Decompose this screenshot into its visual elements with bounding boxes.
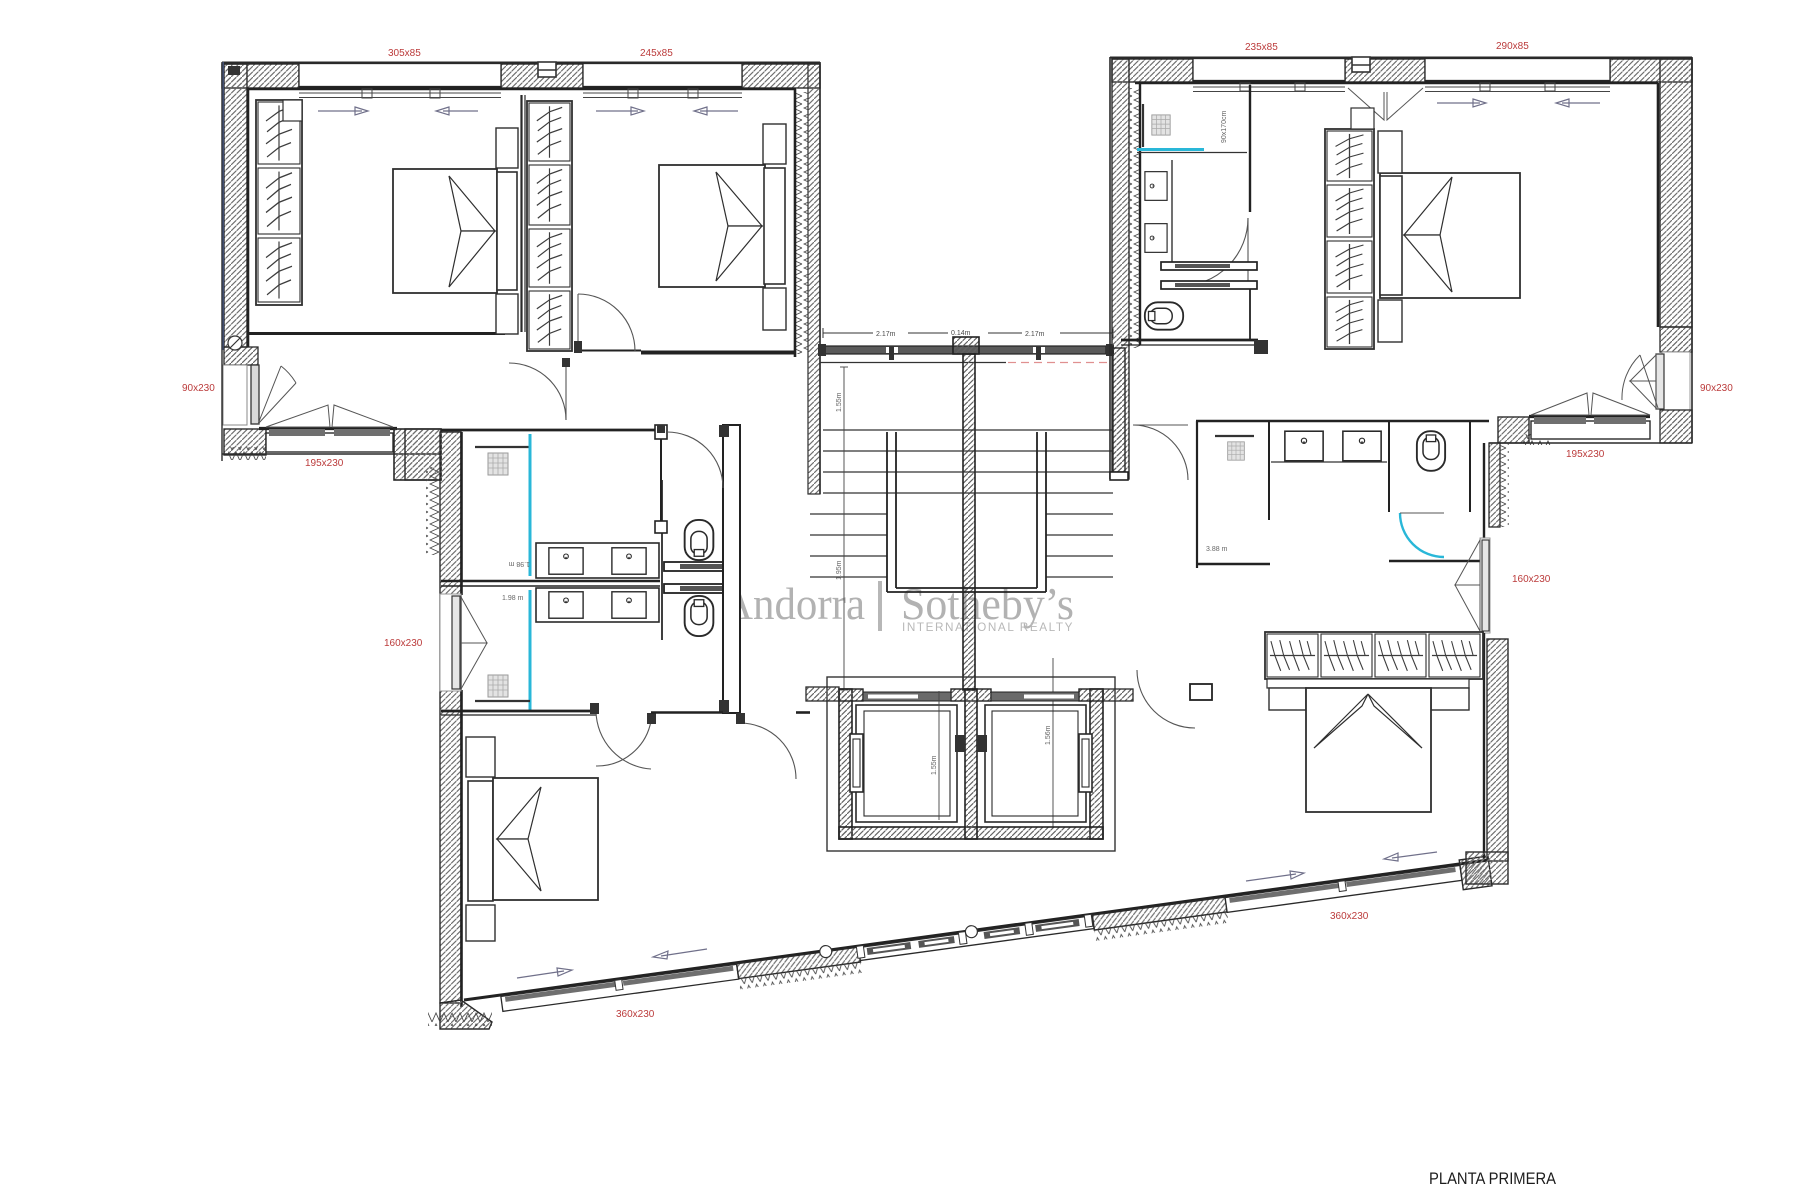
svg-text:0.14m: 0.14m xyxy=(951,330,971,337)
svg-text:1.98 m: 1.98 m xyxy=(502,595,524,602)
svg-text:PLANTA PRIMERA: PLANTA PRIMERA xyxy=(1429,1169,1557,1188)
svg-text:1.56m: 1.56m xyxy=(1045,725,1052,745)
svg-text:INTERNATIONAL REALTY: INTERNATIONAL REALTY xyxy=(902,620,1074,634)
svg-text:1.55m: 1.55m xyxy=(931,755,938,775)
svg-text:235x85: 235x85 xyxy=(1245,42,1278,53)
svg-text:160x230: 160x230 xyxy=(1512,574,1551,585)
svg-text:160x230: 160x230 xyxy=(384,638,423,649)
svg-text:1.98 m: 1.98 m xyxy=(508,560,530,567)
svg-text:90x230: 90x230 xyxy=(182,383,215,394)
svg-text:2.17m: 2.17m xyxy=(876,331,896,338)
svg-text:2.17m: 2.17m xyxy=(1025,331,1045,338)
svg-text:290x85: 290x85 xyxy=(1496,41,1529,52)
svg-text:360x230: 360x230 xyxy=(1330,911,1369,922)
svg-text:195x230: 195x230 xyxy=(1566,449,1605,460)
svg-text:360x230: 360x230 xyxy=(616,1009,655,1020)
svg-text:1.55m: 1.55m xyxy=(836,392,843,412)
svg-text:195x230: 195x230 xyxy=(305,458,344,469)
svg-text:1.95m: 1.95m xyxy=(836,560,843,580)
svg-text:305x85: 305x85 xyxy=(388,48,421,59)
svg-text:90x230: 90x230 xyxy=(1700,383,1733,394)
svg-text:3.88 m: 3.88 m xyxy=(1206,546,1228,553)
svg-text:245x85: 245x85 xyxy=(640,48,673,59)
svg-text:90x170cm: 90x170cm xyxy=(1221,111,1228,143)
